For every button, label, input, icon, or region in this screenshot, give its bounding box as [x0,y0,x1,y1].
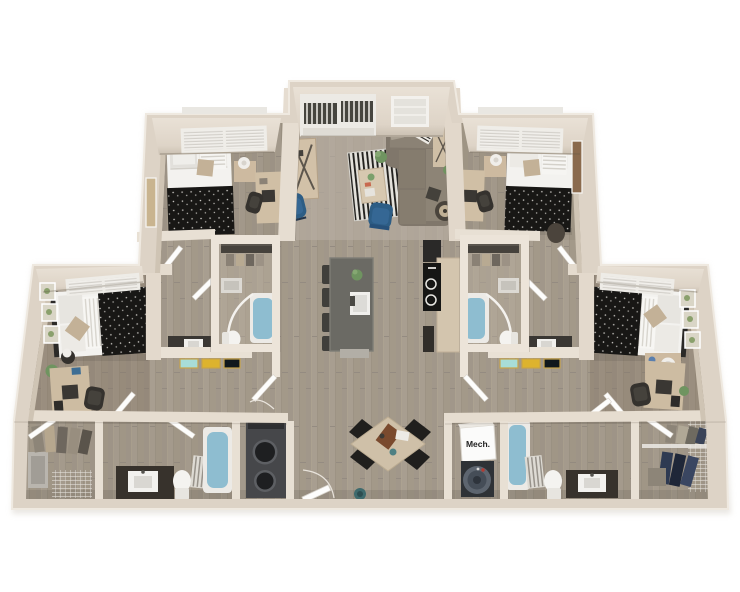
svg-text:Mech.: Mech. [466,439,490,449]
